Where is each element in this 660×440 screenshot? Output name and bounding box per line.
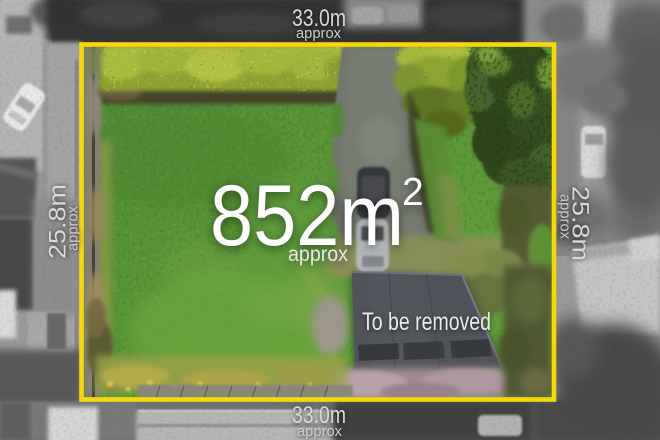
- svg-text:approx: approx: [297, 423, 342, 440]
- svg-text:approx: approx: [288, 243, 348, 266]
- svg-text:To be removed: To be removed: [362, 308, 491, 336]
- svg-text:approx: approx: [65, 206, 82, 251]
- svg-text:2: 2: [402, 171, 424, 214]
- svg-text:approx: approx: [557, 194, 574, 239]
- svg-text:approx: approx: [296, 25, 341, 42]
